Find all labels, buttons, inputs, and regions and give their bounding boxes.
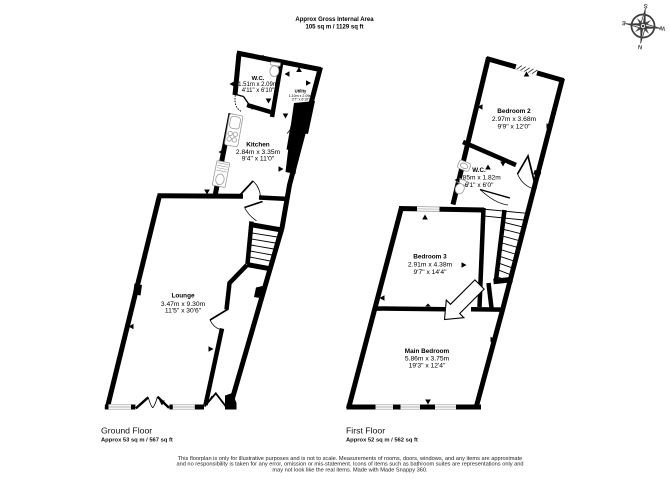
svg-text:Lounge: Lounge — [171, 293, 195, 300]
svg-text:N: N — [638, 43, 643, 50]
svg-text:Approx Gross Internal Area: Approx Gross Internal Area — [295, 17, 374, 23]
svg-text:105 sq m / 1129 sq ft: 105 sq m / 1129 sq ft — [305, 25, 363, 31]
svg-text:Approx 52 sq m / 562 sq ft: Approx 52 sq m / 562 sq ft — [346, 438, 418, 444]
svg-text:6'1" x 6'0": 6'1" x 6'0" — [465, 182, 494, 189]
svg-text:9'7" x 14'4": 9'7" x 14'4" — [414, 269, 448, 276]
svg-text:Approx 53 sq m / 567 sq ft: Approx 53 sq m / 567 sq ft — [101, 438, 173, 444]
svg-text:Utility: Utility — [295, 88, 307, 93]
svg-text:W: W — [659, 24, 666, 31]
svg-text:9'4" x 11'0": 9'4" x 11'0" — [242, 156, 275, 163]
svg-text:11'5" x 30'6": 11'5" x 30'6" — [165, 308, 202, 315]
svg-text:S: S — [644, 2, 649, 9]
svg-text:First Floor: First Floor — [346, 426, 385, 436]
svg-text:Kitchen: Kitchen — [246, 142, 270, 149]
svg-text:W.C.: W.C. — [472, 167, 486, 174]
svg-text:3'7" x 6'10": 3'7" x 6'10" — [292, 98, 310, 102]
svg-text:E: E — [621, 19, 626, 26]
svg-text:Main Bedroom: Main Bedroom — [405, 348, 450, 355]
svg-text:Bedroom 3: Bedroom 3 — [413, 254, 447, 261]
svg-text:2.97m x 3.68m: 2.97m x 3.68m — [492, 116, 537, 123]
svg-text:Ground Floor: Ground Floor — [101, 426, 152, 436]
svg-text:9'9" x 12'0": 9'9" x 12'0" — [498, 124, 532, 131]
svg-text:may not look like the real ite: may not look like the real items. Made w… — [272, 468, 428, 474]
svg-text:5.86m x 3.75m: 5.86m x 3.75m — [405, 356, 450, 363]
svg-text:2.91m x 4.38m: 2.91m x 4.38m — [408, 262, 453, 269]
svg-text:4'11" x 6'10": 4'11" x 6'10" — [242, 88, 274, 94]
svg-text:W.C.: W.C. — [252, 76, 265, 82]
svg-text:19'3" x 12'4": 19'3" x 12'4" — [409, 363, 446, 370]
svg-text:Bedroom 2: Bedroom 2 — [497, 108, 531, 115]
svg-text:1.85m x 1.82m: 1.85m x 1.82m — [457, 175, 501, 182]
